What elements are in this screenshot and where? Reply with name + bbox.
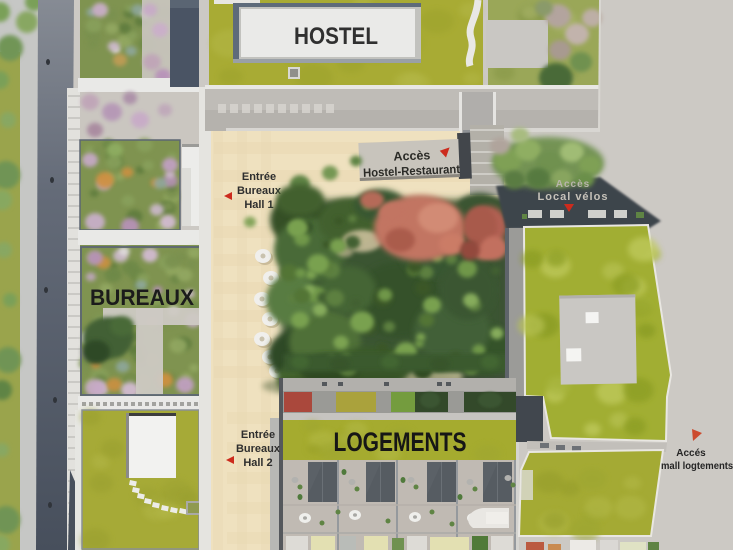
svg-text:Entrée: Entrée xyxy=(242,171,276,183)
svg-text:Entrée: Entrée xyxy=(241,429,275,441)
svg-text:Hall 1: Hall 1 xyxy=(244,199,273,211)
svg-text:mall logtementsu: mall logtementsu xyxy=(661,461,733,472)
svg-text:Accès: Accès xyxy=(556,179,590,190)
svg-text:Hall 2: Hall 2 xyxy=(243,457,272,469)
svg-text:HOSTEL: HOSTEL xyxy=(294,23,378,50)
svg-text:BUREAUX: BUREAUX xyxy=(90,285,194,310)
svg-text:Bureaux: Bureaux xyxy=(237,185,282,197)
svg-text:Accés: Accés xyxy=(676,448,706,459)
svg-text:LOGEMENTS: LOGEMENTS xyxy=(334,427,467,457)
svg-text:Local vélos: Local vélos xyxy=(538,191,609,203)
svg-text:Accès: Accès xyxy=(393,148,430,163)
svg-text:Bureaux: Bureaux xyxy=(236,443,281,455)
